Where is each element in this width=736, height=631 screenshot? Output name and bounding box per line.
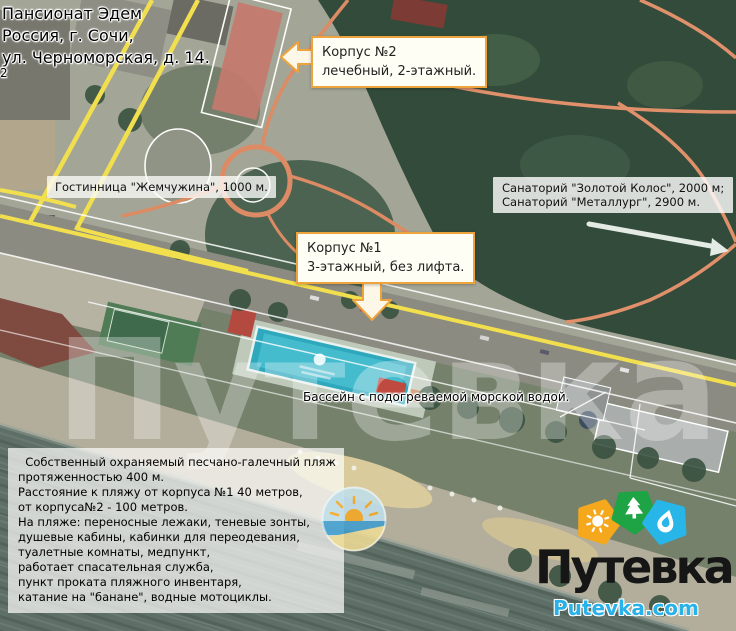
beach-info-line: пункт проката пляжного инвентаря, — [18, 575, 336, 590]
sanatorium-line-2: Санаторий "Металлург", 2900 м. — [502, 195, 724, 209]
pool-label: Бассейн с подогреваемой морской водой. — [303, 390, 569, 404]
sanatorium-distance-label: Санаторий "Золотой Колос", 2000 м; Санат… — [493, 177, 733, 213]
address-line-1: Пансионат Эдем — [2, 3, 210, 25]
korpus1-callout: Корпус №1 3-этажный, без лифта. — [296, 232, 475, 284]
sanatorium-line-1: Санаторий "Золотой Колос", 2000 м; — [502, 181, 724, 195]
korpus2-desc: лечебный, 2-этажный. — [322, 62, 476, 81]
korpus1-desc: 3-этажный, без лифта. — [307, 258, 464, 277]
hotel-distance-label: Гостинница "Жемчужина", 1000 м. — [47, 176, 276, 198]
resort-address: Пансионат Эдем Россия, г. Сочи, ул. Черн… — [2, 3, 210, 69]
address-line-3: ул. Черноморская, д. 14. — [2, 47, 210, 69]
beach-info-line: от корпуса№2 - 100 метров. — [18, 500, 336, 515]
edge-number-label: 2 — [0, 66, 8, 80]
korpus2-callout: Корпус №2 лечебный, 2-этажный. — [311, 36, 487, 88]
map-view[interactable]: Путевка Пансионат Эдем Россия, г. Сочи, … — [0, 0, 736, 631]
beach-info-line: работает спасательная служба, — [18, 560, 336, 575]
beach-info-line: На пляже: переносные лежаки, теневые зон… — [18, 515, 336, 530]
beach-info-line: катание на "банане", водные мотоциклы. — [18, 590, 336, 605]
beach-icon — [320, 485, 388, 553]
beach-info-line: протяженностью 400 м. — [18, 470, 336, 485]
address-line-2: Россия, г. Сочи, — [2, 25, 210, 47]
beach-info-line: туалетные комнаты, медпункт, — [18, 545, 336, 560]
beach-info-line: душевые кабины, кабинки для переодевания… — [18, 530, 336, 545]
beach-info-line: Расстояние к пляжу от корпуса №1 40 метр… — [18, 485, 336, 500]
korpus2-title: Корпус №2 — [322, 43, 476, 62]
beach-info-box: Собственный охраняемый песчано-галечный … — [8, 448, 344, 613]
korpus1-title: Корпус №1 — [307, 239, 464, 258]
beach-info-line: Собственный охраняемый песчано-галечный … — [18, 455, 336, 470]
logo-brand: Путевка — [535, 544, 732, 590]
logo-domain: Putevka.com — [553, 596, 699, 620]
